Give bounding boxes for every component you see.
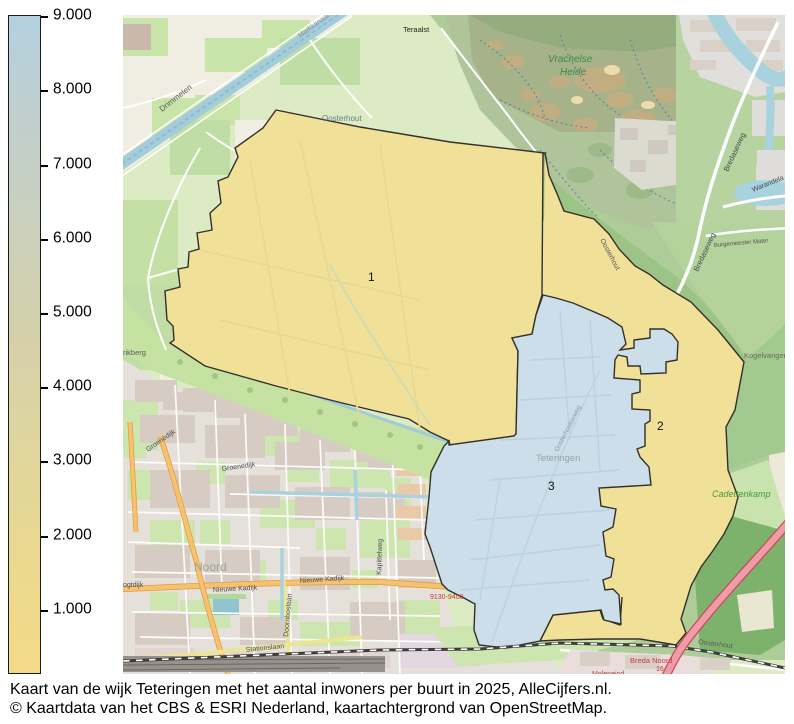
svg-text:Cadettenkamp: Cadettenkamp: [712, 489, 771, 499]
svg-text:Breda Noord: Breda Noord: [630, 656, 673, 665]
svg-text:ogtdijk: ogtdijk: [123, 582, 144, 589]
svg-text:Heide: Heide: [560, 67, 587, 78]
svg-text:rikberg: rikberg: [123, 348, 146, 357]
svg-text:3: 3: [548, 479, 555, 493]
svg-text:9130-9400: 9130-9400: [430, 594, 464, 601]
svg-text:Moleneind: Moleneind: [592, 671, 624, 678]
svg-text:Kogelvanger: Kogelvanger: [744, 351, 787, 360]
svg-text:Teteringen: Teteringen: [536, 453, 580, 464]
svg-text:1: 1: [368, 270, 375, 284]
svg-text:Kapittelweg: Kapittelweg: [376, 539, 384, 576]
svg-text:Oosterhout: Oosterhout: [322, 114, 362, 123]
svg-text:Vrachelse: Vrachelse: [548, 54, 593, 65]
svg-text:Teraalst: Teraalst: [403, 25, 430, 34]
svg-text:Noord: Noord: [194, 560, 227, 574]
svg-text:16: 16: [656, 666, 664, 673]
svg-text:2: 2: [657, 419, 664, 433]
